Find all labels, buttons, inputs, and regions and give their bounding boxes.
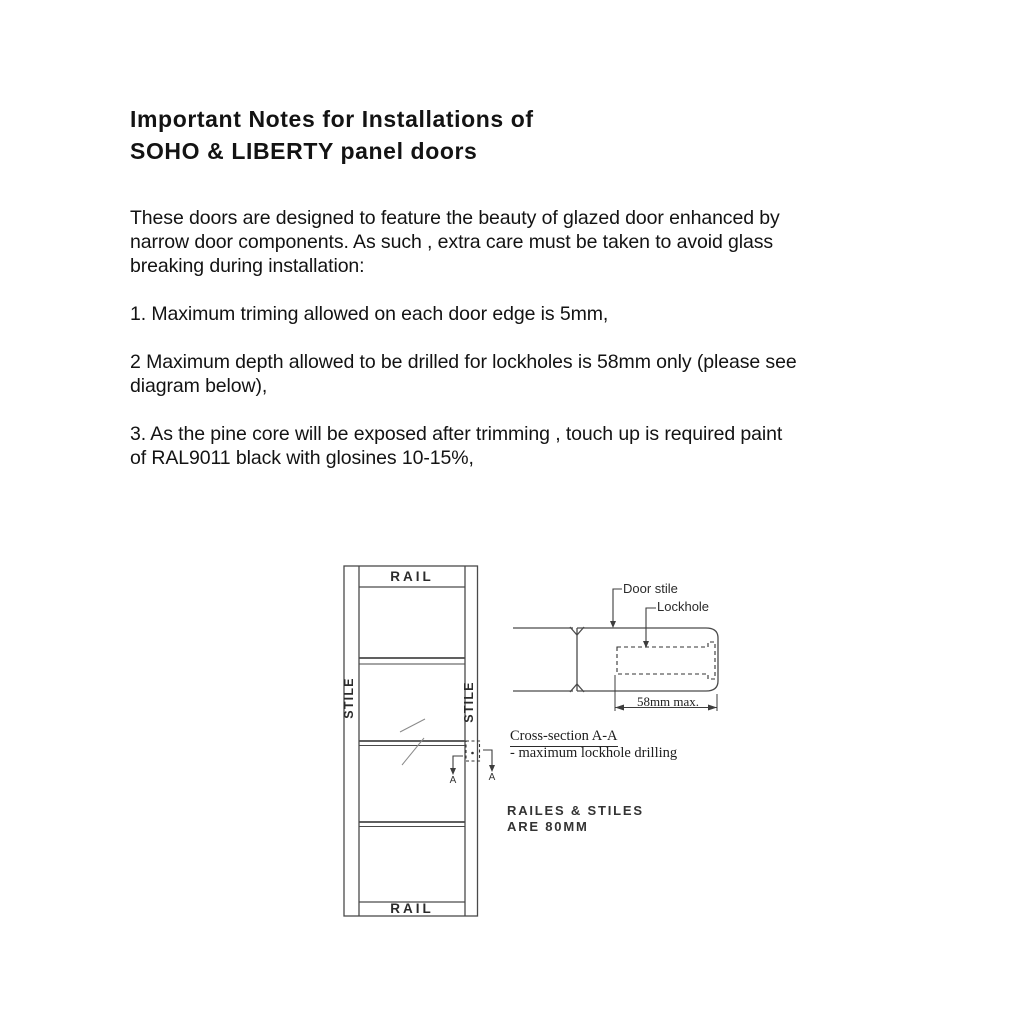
technical-drawing xyxy=(0,0,1024,1024)
dimension-58mm-label: 58mm max. xyxy=(620,694,716,710)
stile-left-label: STILE xyxy=(342,668,362,728)
section-a-label-left: A xyxy=(446,775,460,786)
section-a-label-right: A xyxy=(485,772,499,783)
glass-marks xyxy=(400,719,425,765)
cross-section-caption-subtitle: - maximum lockhole drilling xyxy=(510,745,677,762)
rails-stiles-size-note: RAILES & STILES ARE 80MM xyxy=(507,803,644,835)
stile-right-label: STILE xyxy=(462,672,482,732)
rail-top-label: RAIL xyxy=(359,569,465,584)
door-elevation-drawing xyxy=(344,566,495,916)
lockhole-dashed-outline xyxy=(617,642,715,679)
document-page: Important Notes for Installations of SOH… xyxy=(0,0,1024,1024)
door-stile-label: Door stile xyxy=(623,581,678,596)
lockhole-label: Lockhole xyxy=(657,599,709,614)
rail-bottom-label: RAIL xyxy=(359,901,465,916)
mid-rail-lines xyxy=(359,658,465,827)
door-stile-leader-arrow xyxy=(610,589,622,628)
stile-cross-section-outline xyxy=(577,628,718,691)
lockhole-dot xyxy=(471,752,474,755)
